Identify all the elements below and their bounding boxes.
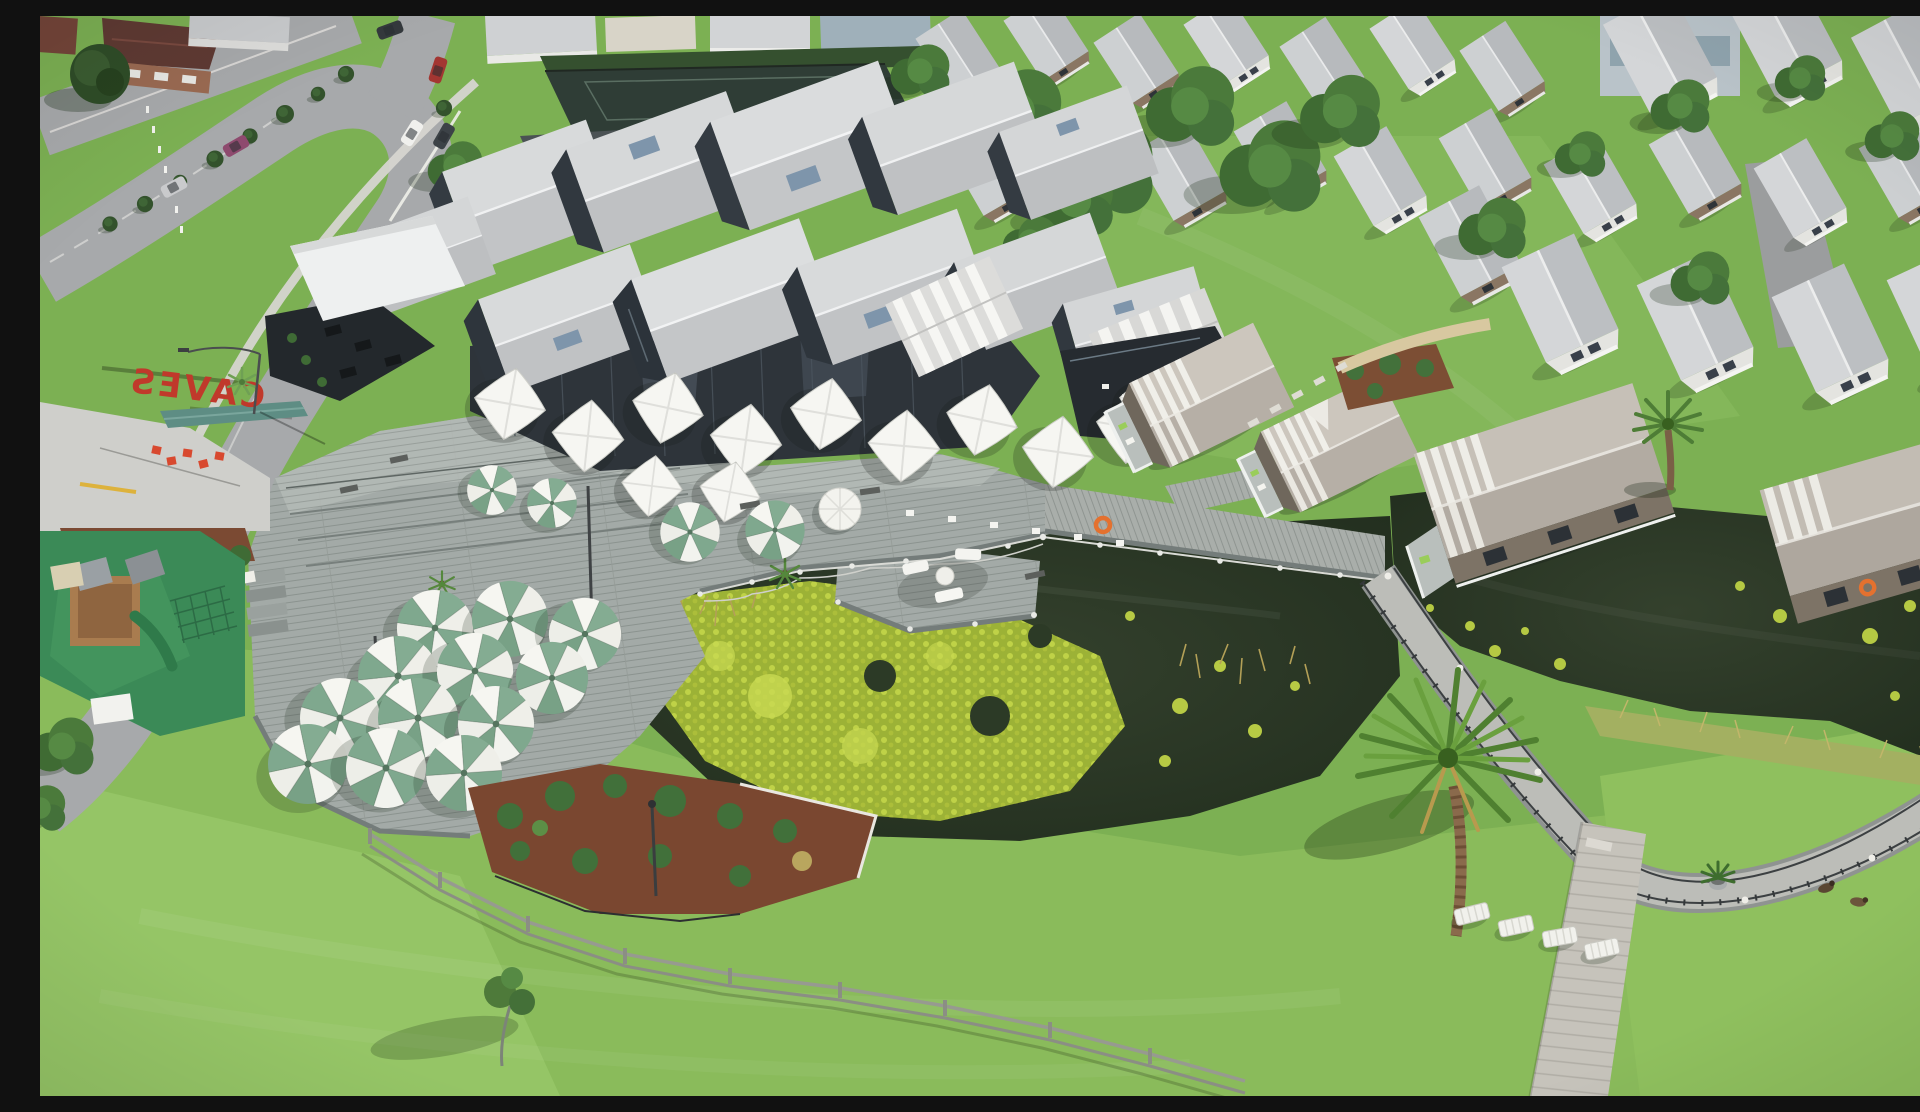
- aerial-photo: Aerial drone view of a beachside resort:…: [40, 16, 1920, 1096]
- vignette: [40, 16, 1920, 1096]
